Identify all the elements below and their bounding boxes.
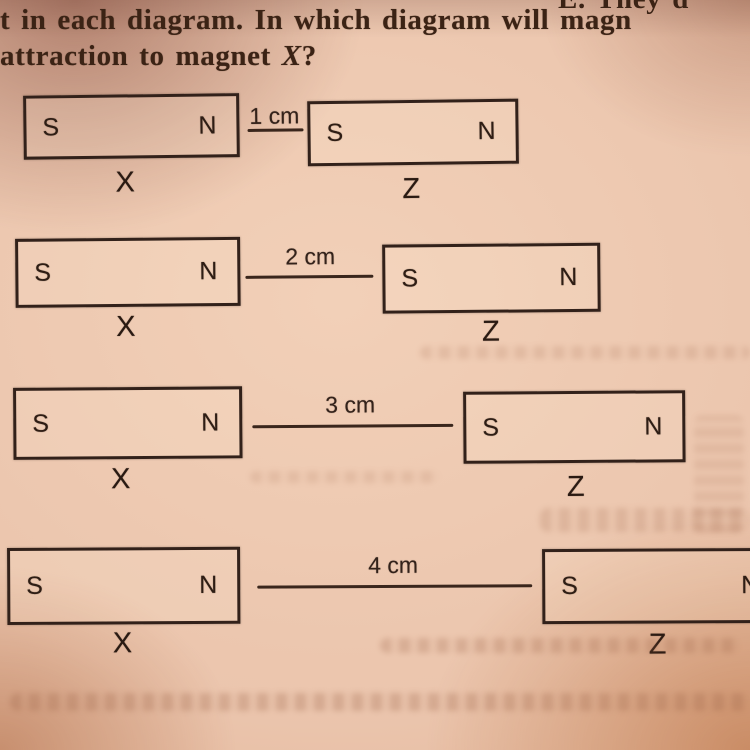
bleed-through-smudge — [420, 346, 750, 359]
pole-label-s: S — [561, 574, 578, 599]
pole-label-n: N — [199, 573, 217, 598]
magnet-z-label: Z — [482, 318, 500, 347]
pole-label-s: S — [482, 415, 499, 440]
distance-label: 3 cm — [325, 393, 375, 416]
distance-label: 2 cm — [285, 245, 335, 268]
magnet-x-box: S N — [13, 386, 242, 460]
magnet-z-label: Z — [402, 175, 420, 204]
distance-label: 4 cm — [368, 554, 418, 577]
pole-label-n: N — [741, 573, 750, 598]
pole-label-s: S — [34, 261, 51, 286]
diagram-4cm: S N 4 cm S N X Z — [0, 538, 750, 674]
magnet-x-box: S N — [15, 237, 241, 308]
magnet-z-box: S N — [307, 99, 519, 167]
pole-label-s: S — [401, 266, 418, 291]
distance-line — [257, 584, 532, 588]
magnet-x-label: X — [116, 313, 136, 342]
pole-label-n: N — [198, 113, 216, 138]
distance-label: 1 cm — [249, 104, 299, 128]
magnet-x-variable: X — [282, 40, 302, 72]
magnet-z-box: S N — [463, 390, 685, 464]
pole-label-s: S — [42, 115, 59, 140]
bleed-through-smudge — [250, 471, 440, 483]
bleed-through-smudge — [380, 638, 740, 653]
diagram-2cm: S N 2 cm S N X Z — [0, 226, 750, 365]
magnet-z-box: S N — [382, 243, 601, 314]
diagram-1cm: S N 1 cm S N X Z — [0, 81, 750, 222]
distance-line — [245, 275, 373, 279]
question-line-2: attraction to magnet X? — [0, 38, 750, 74]
pole-label-n: N — [477, 119, 495, 144]
pole-label-s: S — [26, 574, 43, 599]
magnet-z-box: S N — [542, 548, 750, 624]
magnet-x-label: X — [111, 465, 131, 494]
magnet-x-box: S N — [7, 547, 240, 625]
pole-label-n: N — [559, 265, 577, 290]
pole-label-n: N — [201, 410, 219, 435]
pole-label-n: N — [199, 259, 217, 284]
question-top-fragment: E. They d — [558, 0, 689, 16]
pole-label-s: S — [32, 411, 49, 436]
page-background: { "page": { "question_line1": "t in each… — [0, 0, 750, 750]
magnet-x-label: X — [113, 629, 132, 658]
distance-line — [252, 424, 453, 428]
magnet-x-label: X — [115, 168, 135, 197]
magnet-x-box: S N — [23, 93, 240, 160]
bleed-through-smudge — [694, 415, 744, 533]
distance-line — [247, 128, 303, 132]
diagram-3cm: S N 3 cm S N X Z — [0, 377, 750, 514]
pole-label-s: S — [326, 121, 343, 146]
magnet-z-label: Z — [567, 473, 585, 502]
bleed-through-smudge — [10, 693, 750, 711]
pole-label-n: N — [644, 414, 662, 439]
